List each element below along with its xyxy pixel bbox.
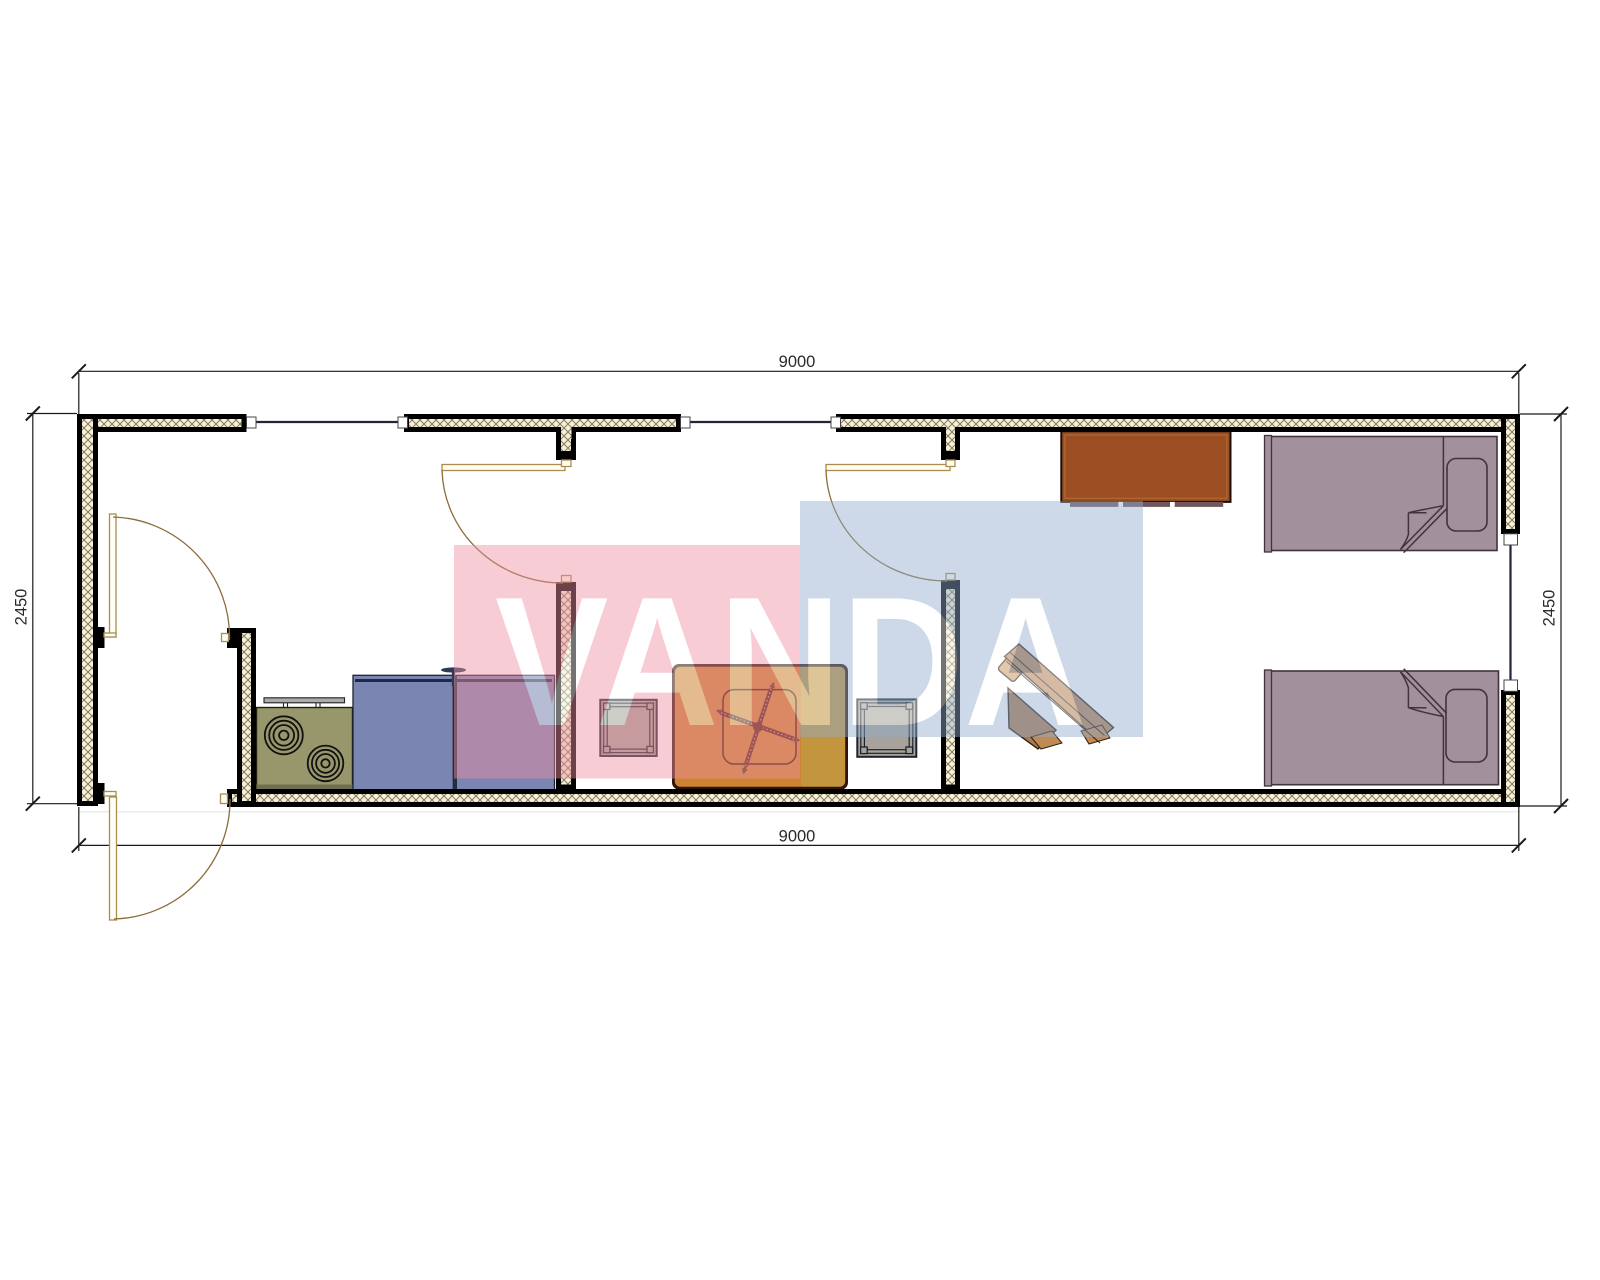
svg-text:2450: 2450 [1541, 590, 1559, 627]
svg-text:2450: 2450 [13, 589, 31, 626]
svg-text:9000: 9000 [779, 828, 816, 846]
svg-text:9000: 9000 [779, 353, 816, 371]
svg-text:VANDA: VANDA [495, 558, 1087, 764]
